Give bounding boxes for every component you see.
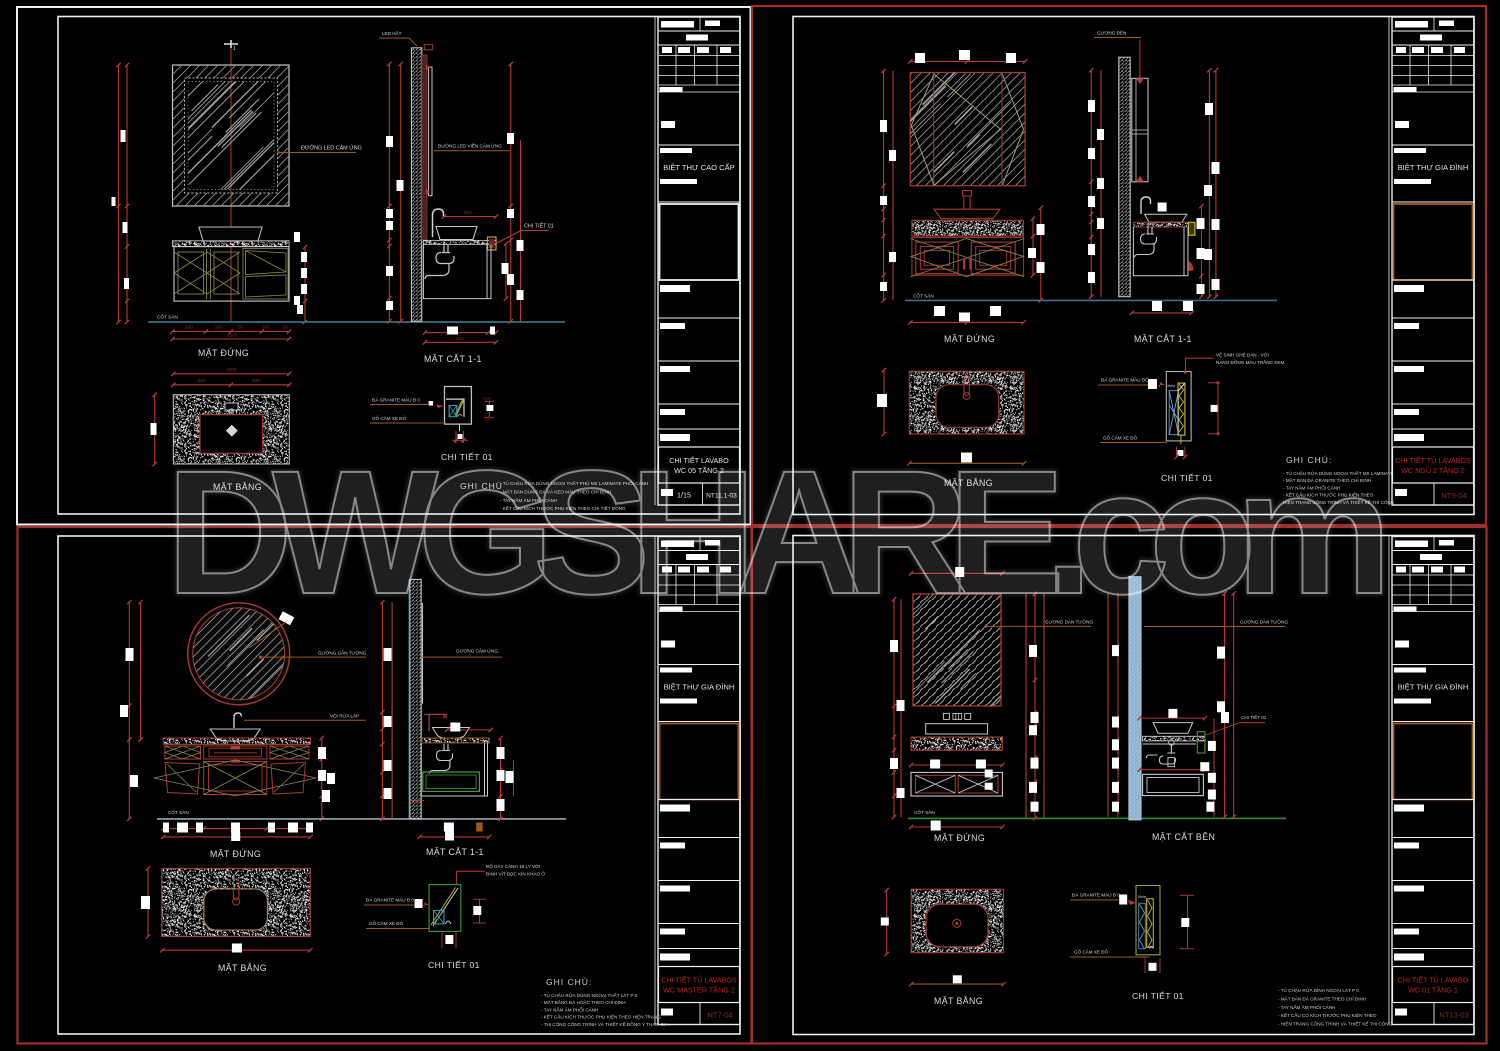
svg-text:- TỦ CHẬU RỬA ĐÌNH NGOẠI LÁT P: - TỦ CHẬU RỬA ĐÌNH NGOẠI LÁT P 0 <box>1278 987 1359 993</box>
svg-text:BIỆT THỰ GIA ĐÌNH: BIỆT THỰ GIA ĐÌNH <box>1398 683 1469 692</box>
svg-text:Mela: Mela <box>1138 895 1146 899</box>
svg-text:Mela: Mela <box>1168 384 1175 388</box>
svg-text:NANO ĐỒNG MÀU TRẮNG KEM: NANO ĐỒNG MÀU TRẮNG KEM <box>1216 358 1284 365</box>
svg-text:600: 600 <box>464 210 472 215</box>
svg-text:xxxxx: xxxxx <box>483 397 491 401</box>
svg-text:1000: 1000 <box>226 367 237 372</box>
svg-text:CHI TIẾT TỦ LAVABO: CHI TIẾT TỦ LAVABO <box>1398 975 1469 985</box>
svg-text:- THI CÔNG CÔNG TRÌNH VÀ THIẾT: - THI CÔNG CÔNG TRÌNH VÀ THIẾT KẾ ĐỒNG Ý… <box>541 1021 669 1027</box>
svg-text:CHI TIẾT TỦ LAVABOS: CHI TIẾT TỦ LAVABOS <box>661 975 737 985</box>
svg-text:50: 50 <box>238 325 244 330</box>
svg-text:CHI TIẾT 01: CHI TIẾT 01 <box>1241 714 1267 720</box>
svg-text:500: 500 <box>198 378 206 383</box>
svg-text:NT13-03: NT13-03 <box>1439 1011 1469 1020</box>
svg-text:VÒI RỬA LẮP: VÒI RỬA LẮP <box>330 712 359 719</box>
svg-text:ĐÁ GRANITE MÀU Đ 0: ĐÁ GRANITE MÀU Đ 0 <box>372 397 420 403</box>
svg-text:CỐT SÀN: CỐT SÀN <box>914 809 935 815</box>
svg-text:ĐÁ GRANITE MÀU Đ 0: ĐÁ GRANITE MÀU Đ 0 <box>1072 892 1120 898</box>
svg-text:LED HẮT: LED HẮT <box>382 29 402 36</box>
svg-text:240: 240 <box>262 325 270 330</box>
svg-text:CỐT SÀN: CỐT SÀN <box>168 809 189 815</box>
svg-text:MẶT CẮT 1-1: MẶT CẮT 1-1 <box>426 847 484 857</box>
svg-text:GỖ CĂM XE ĐỎ: GỖ CĂM XE ĐỎ <box>1074 949 1109 955</box>
svg-text:MẶT ĐỨNG: MẶT ĐỨNG <box>198 348 249 358</box>
svg-text:BIỆT THỰ GIA ĐÌNH: BIỆT THỰ GIA ĐÌNH <box>1398 163 1469 172</box>
svg-text:50: 50 <box>283 325 289 330</box>
svg-text:MẶT BẰNG: MẶT BẰNG <box>934 996 983 1006</box>
svg-text:ĐINH VÍT BỌC KÍN KHAO Ở: ĐINH VÍT BỌC KÍN KHAO Ở <box>486 871 545 877</box>
svg-text:DWGSHARE.com: DWGSHARE.com <box>166 435 1381 631</box>
svg-text:WC 01 TẦNG 1: WC 01 TẦNG 1 <box>1408 985 1458 995</box>
svg-text:- KẾT CẤU KÍCH THƯỚC PHỤ KIỆN: - KẾT CẤU KÍCH THƯỚC PHỤ KIỆN THEO HIỆN … <box>541 1013 661 1020</box>
svg-text:VỆ SINH GHÉ DÁN - VỚI: VỆ SINH GHÉ DÁN - VỚI <box>1216 351 1269 358</box>
svg-text:CHI TIẾT 01: CHI TIẾT 01 <box>428 960 480 970</box>
svg-text:xxxx: xxxx <box>484 418 491 422</box>
svg-text:GƯƠNG ĐÈN: GƯƠNG ĐÈN <box>1097 30 1126 36</box>
svg-text:MẶT ĐỨNG: MẶT ĐỨNG <box>944 334 995 344</box>
svg-text:NT7-04: NT7-04 <box>707 1011 732 1020</box>
svg-text:GỖ CĂM XE ĐỎ: GỖ CĂM XE ĐỎ <box>369 920 404 926</box>
svg-text:CHI TIẾT TỦ LAVABOS: CHI TIẾT TỦ LAVABOS <box>1395 455 1471 465</box>
svg-text:- TỦ CHẬU RỬA DÙNG NGOẠI THẤT: - TỦ CHẬU RỬA DÙNG NGOẠI THẤT LÁT P 0 <box>541 992 638 998</box>
svg-text:1000: 1000 <box>227 333 238 338</box>
svg-text:WC MASTER TẦNG 2: WC MASTER TẦNG 2 <box>663 985 735 995</box>
svg-text:BIỆT THỰ GIA ĐÌNH: BIỆT THỰ GIA ĐÌNH <box>664 683 735 692</box>
svg-text:GỖ CĂM XE ĐỎ: GỖ CĂM XE ĐỎ <box>372 415 407 421</box>
svg-text:CHI TIẾT 01: CHI TIẾT 01 <box>524 223 554 230</box>
svg-text:- KẾT CẤU CÓ KÍCH THƯỚC PHỤ KI: - KẾT CẤU CÓ KÍCH THƯỚC PHỤ KIỆN THEO <box>1278 1011 1377 1018</box>
svg-text:600: 600 <box>456 336 464 341</box>
svg-text:ĐÁ GRANITE MÀU Đ 0: ĐÁ GRANITE MÀU Đ 0 <box>366 897 414 903</box>
svg-text:- MẶT BẰNG ĐÁ HOẶC THEO CHỈ ĐỊ: - MẶT BẰNG ĐÁ HOẶC THEO CHỈ ĐỊNH <box>541 998 626 1005</box>
svg-text:CỐT SÀN: CỐT SÀN <box>157 314 178 320</box>
svg-text:ĐƯỜNG LED CẢM ỨNG: ĐƯỜNG LED CẢM ỨNG <box>301 145 362 152</box>
svg-text:CỐT SÀN: CỐT SÀN <box>913 293 934 299</box>
svg-text:1: 1 <box>233 46 236 52</box>
svg-text:CHI TIẾT 01: CHI TIẾT 01 <box>1132 991 1184 1001</box>
svg-text:MẶT CẮT 1-1: MẶT CẮT 1-1 <box>1134 334 1192 344</box>
svg-text:- MẶT BÀN ĐÁ GRANITE THEO CHỈ: - MẶT BÀN ĐÁ GRANITE THEO CHỈ ĐỊNH <box>1278 995 1366 1001</box>
svg-text:MẶT CẮT 1-1: MẶT CẮT 1-1 <box>424 354 482 364</box>
svg-text:500: 500 <box>252 378 260 383</box>
svg-text:MẶT BẰNG: MẶT BẰNG <box>218 963 267 973</box>
svg-text:GƯƠNG CẢM ỨNG: GƯƠNG CẢM ỨNG <box>456 648 498 654</box>
svg-text:300: 300 <box>215 325 223 330</box>
svg-text:ĐƯỜNG LED VIỀN CẢM ỨNG: ĐƯỜNG LED VIỀN CẢM ỨNG <box>438 143 502 149</box>
svg-text:GHI CHÚ:: GHI CHÚ: <box>546 977 592 987</box>
svg-text:BIỆT THỰ CAO CẤP: BIỆT THỰ CAO CẤP <box>663 162 735 172</box>
svg-text:NT9-04: NT9-04 <box>1441 491 1466 500</box>
svg-text:ĐỘ DÀY CÁNH 18 LY VỚI: ĐỘ DÀY CÁNH 18 LY VỚI <box>486 863 540 869</box>
svg-text:- HIỆN TRẠNG CÔNG TRÌNH VÀ THI: - HIỆN TRẠNG CÔNG TRÌNH VÀ THIẾT KẾ THI … <box>1278 1020 1393 1027</box>
svg-text:200: 200 <box>185 325 193 330</box>
svg-text:GƯƠNG GẮN TƯỜNG: GƯƠNG GẮN TƯỜNG <box>318 649 367 656</box>
svg-text:- TAY NẮM ÂM PHỐI CẢNH: - TAY NẮM ÂM PHỐI CẢNH <box>541 1005 598 1012</box>
svg-text:WC NGỦ 2 TẦNG 2: WC NGỦ 2 TẦNG 2 <box>1401 465 1465 475</box>
svg-text:MẶT ĐỨNG: MẶT ĐỨNG <box>210 849 261 859</box>
svg-text:MẶT CẮT BÊN: MẶT CẮT BÊN <box>1152 832 1215 842</box>
svg-text:- TAY NẮM ÂM PHỐI CẢNH: - TAY NẮM ÂM PHỐI CẢNH <box>1278 1003 1335 1010</box>
svg-text:MẶT ĐỨNG: MẶT ĐỨNG <box>934 833 985 843</box>
svg-text:ĐÁ GRANITE MÀU ĐỎ: ĐÁ GRANITE MÀU ĐỎ <box>1101 377 1149 383</box>
